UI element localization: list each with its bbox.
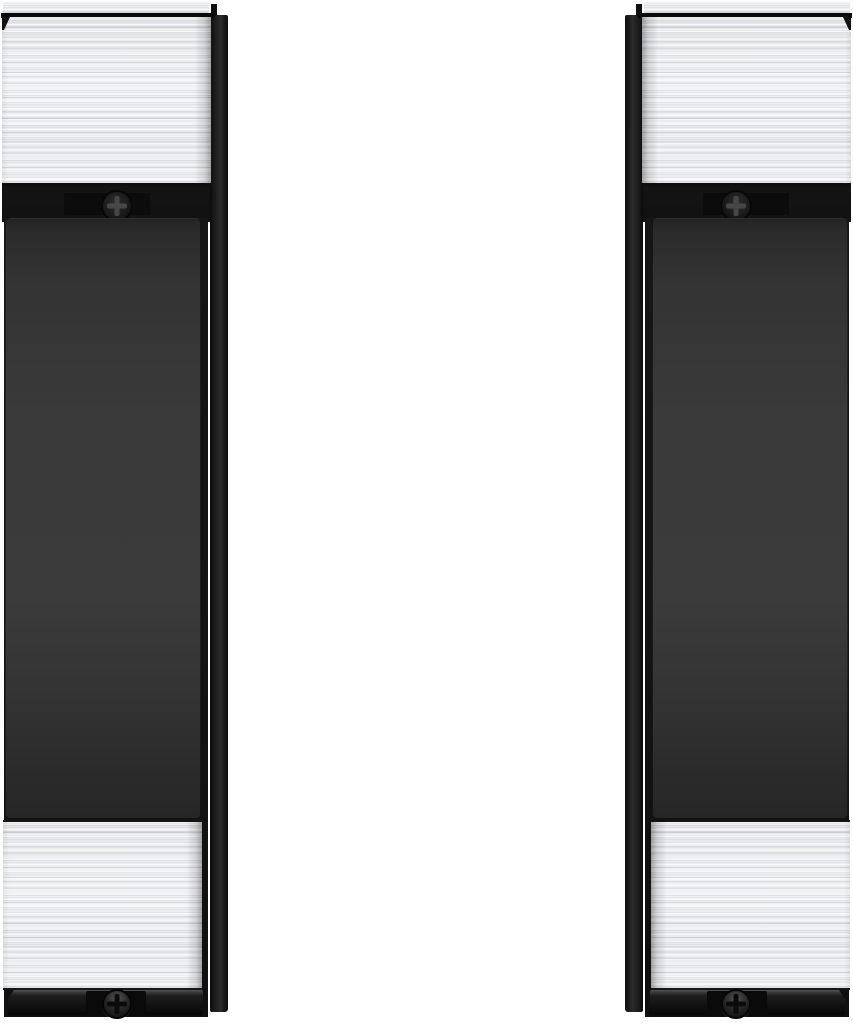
product-photo bbox=[0, 0, 853, 1024]
bottom-cap bbox=[651, 820, 850, 990]
top-cap bbox=[2, 17, 211, 186]
screw-slot bbox=[115, 196, 120, 216]
front-panel bbox=[5, 218, 201, 818]
bottom-screw bbox=[102, 989, 132, 1019]
screw-slot bbox=[115, 994, 120, 1014]
bracket-left bbox=[0, 0, 228, 1024]
screw-slot bbox=[734, 994, 739, 1014]
top-cap bbox=[642, 17, 851, 186]
bracket-right bbox=[625, 0, 853, 1024]
front-panel bbox=[652, 218, 848, 818]
top-trim bbox=[644, 2, 850, 13]
top-trim bbox=[3, 2, 209, 13]
side-rail bbox=[210, 15, 228, 1012]
side-rail bbox=[625, 15, 643, 1012]
bottom-screw bbox=[721, 989, 751, 1019]
bottom-cap bbox=[3, 820, 202, 990]
screw-slot bbox=[734, 196, 739, 216]
